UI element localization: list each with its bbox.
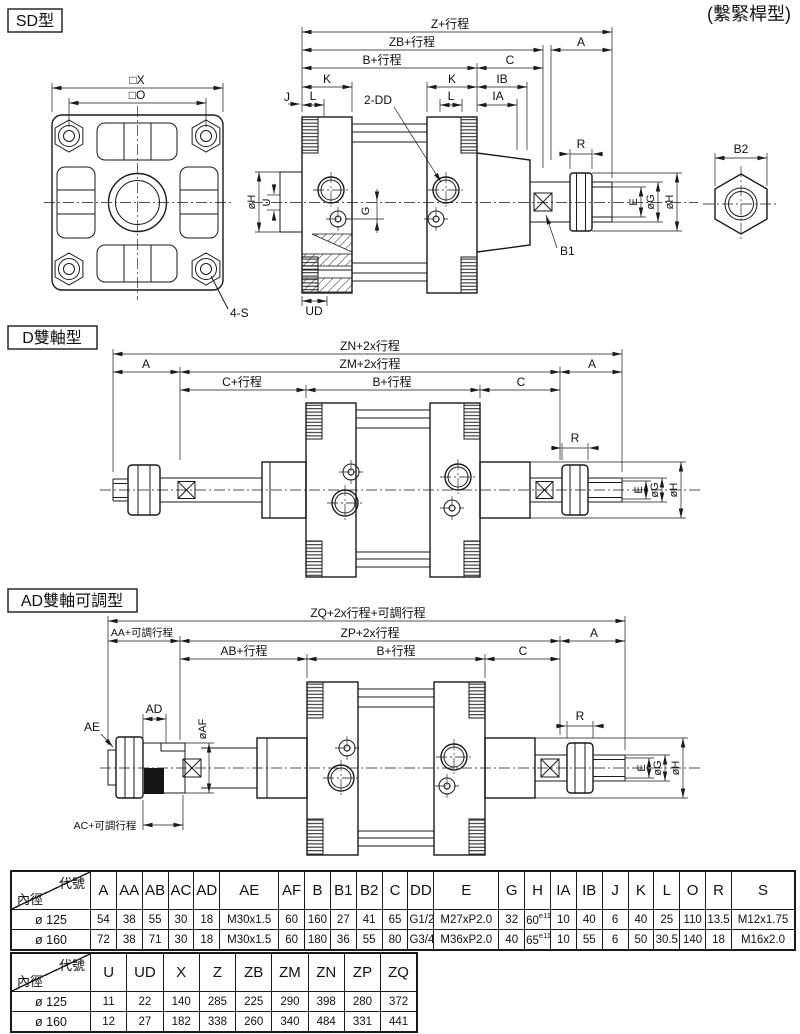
dim-value: 11 (91, 992, 127, 1012)
dim-label-zq: ZQ+2x行程+可調行程 (310, 605, 425, 620)
dim-value: 30 (168, 910, 194, 930)
column-header-B: B (305, 871, 331, 910)
dim-label-oaf: øAF (197, 718, 209, 739)
column-header-AE: AE (220, 871, 279, 910)
variant-note: (繫緊桿型) (707, 4, 791, 24)
dim-label-a-right: A (588, 357, 596, 371)
dim-label-z: Z+行程 (431, 16, 469, 31)
dim-value: 340 (272, 1012, 308, 1033)
technical-drawings: (繫緊桿型) SD型 (0, 0, 800, 866)
dim-label-r: R (571, 431, 580, 445)
section-title-sd-label: SD型 (16, 12, 54, 30)
column-header-R: R (706, 871, 732, 910)
dim-value: 110 (680, 910, 706, 930)
dim-value: 290 (272, 992, 308, 1012)
dim-label-u: U (261, 198, 273, 206)
port-right (436, 739, 472, 775)
rod-nut (570, 173, 592, 231)
dim-value: G1/2 (408, 910, 434, 930)
dim-value: M27xP2.0 (434, 910, 499, 930)
port-right (440, 459, 476, 495)
column-header-C: C (382, 871, 408, 910)
column-header-B2: B2 (356, 871, 382, 910)
dim-label-l: L (310, 89, 317, 103)
dim-value: 398 (308, 992, 344, 1012)
dim-label-k: K (323, 72, 331, 86)
dim-value: 30 (168, 930, 194, 951)
dim-value: 30.5 (654, 930, 680, 951)
dim-label-aa: AA+可調行程 (111, 626, 174, 639)
ad-type-view: ZQ+2x行程+可調行程 AA+可調行程 ZP+2x行程 A AB+行程 B+行… (74, 605, 700, 855)
dim-value: 18 (194, 910, 220, 930)
dim-value: 65 (382, 910, 408, 930)
dim-label-b-stroke: B+行程 (372, 374, 411, 389)
dim-label-square-o: □O (129, 88, 146, 102)
dim-value: 18 (194, 930, 220, 951)
dim-value: 372 (381, 992, 417, 1012)
column-header-AD: AD (194, 871, 220, 910)
dim-label-r: R (576, 709, 585, 723)
table-corner-header: 代號內徑 (11, 953, 91, 992)
column-header-K: K (628, 871, 654, 910)
dim-label-b: B+行程 (376, 643, 415, 658)
section-title-d: D雙軸型 (8, 326, 97, 349)
column-header-AC: AC (168, 871, 194, 910)
column-header-ZN: ZN (308, 953, 344, 992)
corner-bore-label: 內徑 (17, 889, 43, 908)
dim-value: 32 (499, 910, 525, 930)
dim-value: 27 (330, 910, 356, 930)
column-header-E: E (434, 871, 499, 910)
dim-value: 27 (127, 1012, 163, 1033)
dimension-table-primary: 代號內徑AAAABACADAEAFBB1B2CDDEGHIAIBJKLORSø … (10, 870, 796, 951)
dim-value: 10 (550, 930, 576, 951)
dim-value: 38 (116, 930, 142, 951)
dim-label-zn: ZN+2x行程 (340, 338, 400, 353)
dim-label-zb: ZB+行程 (389, 34, 435, 49)
column-header-IB: IB (576, 871, 602, 910)
dim-value: 40 (576, 910, 602, 930)
dim-value: 225 (236, 992, 272, 1012)
dim-label-b2: B2 (734, 142, 749, 156)
bumper-block (144, 768, 164, 794)
dim-value: 6 (602, 910, 628, 930)
table-row: ø 1607238713018M30x1.560180365580G3/4M36… (11, 930, 795, 951)
dim-value: M30x1.5 (220, 910, 279, 930)
dim-value: 41 (356, 910, 382, 930)
dim-value: 54 (91, 910, 117, 930)
bore-label: ø 160 (11, 1012, 91, 1033)
section-title-ad: AD雙軸可調型 (8, 589, 137, 612)
dim-label-e: E (636, 764, 648, 771)
dim-label-ia: IA (492, 89, 503, 103)
column-header-AB: AB (142, 871, 168, 910)
column-header-AA: AA (116, 871, 142, 910)
dim-label-c-stroke: C+行程 (222, 374, 262, 389)
column-header-H: H (525, 871, 551, 910)
dim-label-og: øG (645, 194, 657, 209)
corner-nut (192, 253, 220, 285)
section-title-ad-label: AD雙軸可調型 (21, 592, 123, 610)
sd-front-view: □X □O 4-S (44, 73, 249, 320)
dim-value: 55 (356, 930, 382, 951)
dim-label-j: J (284, 90, 290, 104)
dim-value: 260 (236, 1012, 272, 1033)
section-title-d-label: D雙軸型 (22, 329, 82, 347)
column-header-S: S (732, 871, 796, 910)
dim-value: 38 (116, 910, 142, 930)
dim-label-b1: B1 (560, 244, 575, 258)
dim-label-4s: 4-S (230, 306, 249, 320)
dim-label-a-left: A (142, 357, 150, 371)
sd-side-view: Z+行程 ZB+行程 A B+行程 C K K IB J L L IA 2-DD (246, 16, 698, 318)
dim-value: 484 (308, 1012, 344, 1033)
dim-value: 65e11 (525, 930, 551, 951)
dim-label-k2: K (448, 72, 456, 86)
dim-value: 50 (628, 930, 654, 951)
dim-value: 18 (706, 930, 732, 951)
dim-value: 6 (602, 930, 628, 951)
dim-value: 71 (142, 930, 168, 951)
column-header-B1: B1 (330, 871, 356, 910)
dim-value: M12x1.75 (732, 910, 796, 930)
table-row: ø 1601227182338260340484331441 (11, 1012, 417, 1033)
column-header-A: A (91, 871, 117, 910)
dim-label-zp: ZP+2x行程 (340, 625, 399, 640)
table-corner-header: 代號內徑 (11, 871, 91, 910)
dim-value: 10 (550, 910, 576, 930)
dim-label-dd: 2-DD (364, 93, 392, 107)
dim-label-ad: AD (146, 702, 163, 716)
dim-value: 40 (499, 930, 525, 951)
rear-boss (280, 172, 302, 232)
column-header-U: U (91, 953, 127, 992)
table-row: ø 1255438553018M30x1.560160274165G1/2M27… (11, 910, 795, 930)
dim-label-oh: øH (670, 761, 682, 776)
dim-label-ab: AB+行程 (220, 643, 267, 658)
dim-label-ud: UD (305, 304, 323, 318)
dim-label-oh: øH (668, 483, 680, 498)
dim-label-square-x: □X (129, 73, 144, 87)
dim-label-c: C (519, 644, 528, 658)
column-header-AF: AF (279, 871, 305, 910)
dim-value: 338 (199, 1012, 235, 1033)
cushion-screw-left (339, 460, 363, 484)
column-header-ZB: ZB (236, 953, 272, 992)
dim-label-e: E (628, 198, 640, 205)
dim-label-a: A (577, 35, 585, 49)
column-header-DD: DD (408, 871, 434, 910)
bore-label: ø 125 (11, 910, 91, 930)
dim-value: M16x2.0 (732, 930, 796, 951)
dimension-table-stroke: 代號內徑UUDXZZBZMZNZPZQø 1251122140285225290… (10, 952, 418, 1033)
dim-label-oh-left: øH (246, 195, 258, 210)
dim-value: 22 (127, 992, 163, 1012)
cushion-screw-right (440, 496, 464, 520)
catalog-drawing-page: (繫緊桿型) SD型 (0, 0, 800, 1034)
dim-value: 55 (576, 930, 602, 951)
column-header-J: J (602, 871, 628, 910)
column-header-UD: UD (127, 953, 163, 992)
column-header-ZQ: ZQ (381, 953, 417, 992)
dim-label-ae: AE (84, 720, 100, 734)
adjuster-nut (116, 737, 143, 798)
dim-value: 331 (344, 1012, 380, 1033)
dim-label-e: E (633, 486, 645, 493)
dim-value: 180 (305, 930, 331, 951)
dim-value: M30x1.5 (220, 930, 279, 951)
dim-label-og: øG (649, 482, 661, 497)
dim-label-ib: IB (496, 72, 507, 86)
dim-value: 72 (91, 930, 117, 951)
dim-value: 60 (279, 930, 305, 951)
column-header-X: X (163, 953, 199, 992)
corner-bore-label: 內徑 (17, 971, 43, 990)
corner-code-label: 代號 (59, 955, 85, 974)
dim-label-c: C (517, 375, 526, 389)
dim-value: 280 (344, 992, 380, 1012)
dim-value: G3/4 (408, 930, 434, 951)
dim-value: 140 (680, 930, 706, 951)
dim-label-c: C (506, 53, 515, 67)
dim-label-g: G (360, 207, 372, 216)
column-header-G: G (499, 871, 525, 910)
dim-value: 12 (91, 1012, 127, 1033)
rod-key (534, 193, 552, 211)
b2-nut-view: B2 (703, 142, 779, 242)
cushion-screw-right (435, 774, 459, 798)
dim-value: 13.5 (706, 910, 732, 930)
dim-value: 25 (654, 910, 680, 930)
corner-code-label: 代號 (59, 873, 85, 892)
dim-label-r: R (577, 137, 586, 151)
dim-label-oh-right: øH (664, 195, 676, 210)
dim-value: M36xP2.0 (434, 930, 499, 951)
port-left (323, 760, 359, 796)
bore-label: ø 125 (11, 992, 91, 1012)
d-type-view: ZN+2x行程 ZM+2x行程 A A C+行程 B+行程 C R E øG ø… (100, 338, 700, 577)
dim-value: 441 (381, 1012, 417, 1033)
dim-label-ac: AC+可調行程 (74, 819, 137, 832)
corner-nut (55, 253, 83, 285)
cushion-screw-left (335, 736, 359, 760)
column-header-IA: IA (550, 871, 576, 910)
dim-label-a: A (590, 626, 598, 640)
dim-value: 285 (199, 992, 235, 1012)
dim-value: 140 (163, 992, 199, 1012)
dim-value: 182 (163, 1012, 199, 1033)
column-header-L: L (654, 871, 680, 910)
dim-value: 160 (305, 910, 331, 930)
port-left (327, 485, 363, 521)
dim-label-l2: L (448, 89, 455, 103)
column-header-O: O (680, 871, 706, 910)
dim-value: 60 (279, 910, 305, 930)
dim-label-og: øG (652, 760, 664, 775)
table-row: ø 1251122140285225290398280372 (11, 992, 417, 1012)
dim-value: 60e11 (525, 910, 551, 930)
column-header-Z: Z (199, 953, 235, 992)
bore-label: ø 160 (11, 930, 91, 951)
adjuster-washer (108, 750, 116, 785)
section-title-sd: SD型 (8, 9, 62, 32)
column-header-ZP: ZP (344, 953, 380, 992)
dim-value: 40 (628, 910, 654, 930)
dim-value: 36 (330, 930, 356, 951)
dim-value: 80 (382, 930, 408, 951)
dim-label-zm: ZM+2x行程 (339, 356, 400, 371)
column-header-ZM: ZM (272, 953, 308, 992)
dim-label-b: B+行程 (362, 52, 401, 67)
dim-value: 55 (142, 910, 168, 930)
